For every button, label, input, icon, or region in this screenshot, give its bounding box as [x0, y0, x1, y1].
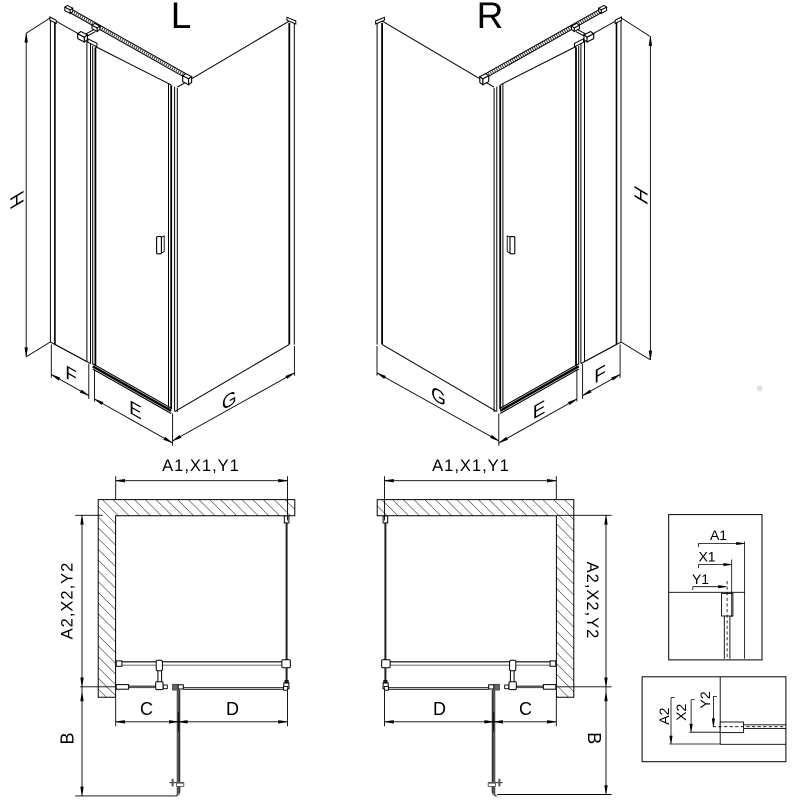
- svg-text:L: L: [171, 0, 192, 36]
- svg-text:A1: A1: [710, 527, 727, 543]
- svg-text:Y1: Y1: [692, 571, 709, 587]
- svg-text:A2,X2,Y2: A2,X2,Y2: [59, 562, 77, 640]
- svg-text:A2: A2: [656, 707, 672, 724]
- svg-text:C: C: [519, 699, 532, 719]
- svg-text:B: B: [584, 732, 604, 744]
- svg-text:R: R: [477, 0, 504, 36]
- svg-text:A1,X1,Y1: A1,X1,Y1: [162, 457, 240, 475]
- svg-text:X1: X1: [698, 549, 715, 565]
- svg-text:A2,X2,Y2: A2,X2,Y2: [583, 562, 601, 640]
- svg-text:X2: X2: [673, 704, 689, 721]
- svg-text:D: D: [226, 699, 239, 719]
- svg-text:Y2: Y2: [697, 691, 713, 708]
- svg-text:D: D: [433, 699, 446, 719]
- svg-text:A1,X1,Y1: A1,X1,Y1: [432, 457, 510, 475]
- svg-text:B: B: [58, 732, 78, 744]
- svg-text:C: C: [140, 699, 153, 719]
